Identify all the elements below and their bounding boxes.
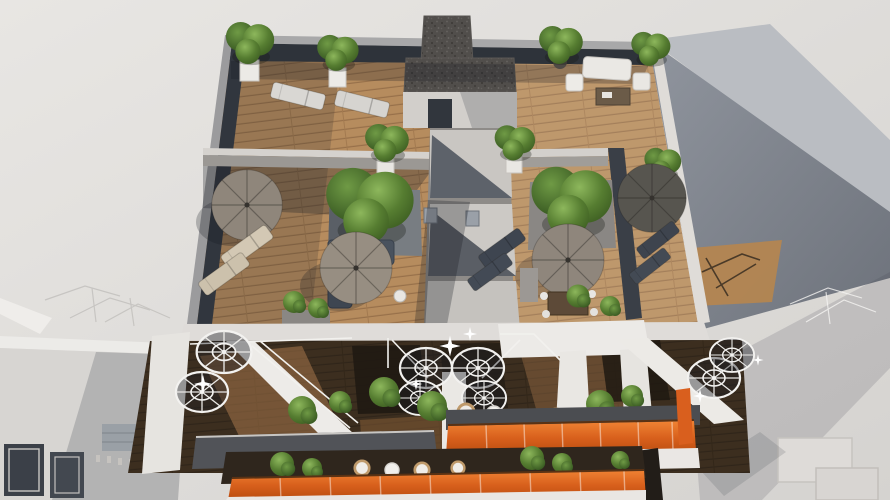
coffee-table [596,88,630,105]
large-tree [326,168,413,246]
potted-tree [317,35,358,72]
render-canvas [0,0,890,500]
orange-railing-sliver [676,388,693,445]
potted-tree [495,125,535,161]
potted-tree [226,22,274,65]
parasol-dark [618,164,686,232]
wicker-chair [355,461,369,475]
main-building-rooftop [187,16,710,330]
parasol [212,170,283,241]
parasol [532,224,604,296]
wicker-chair [452,462,465,475]
neighbor-right-antenna-roof-patch [692,240,782,306]
potted-tree [631,32,670,67]
parasol [320,232,392,304]
side-table [394,290,406,302]
neighbor-left-windows [4,444,84,498]
bulkhead-doorway [428,99,452,128]
potted-tree [539,26,583,65]
planter-box [520,268,538,302]
potted-tree [365,124,409,163]
bulkhead-gravel-roof-stem [421,16,473,62]
